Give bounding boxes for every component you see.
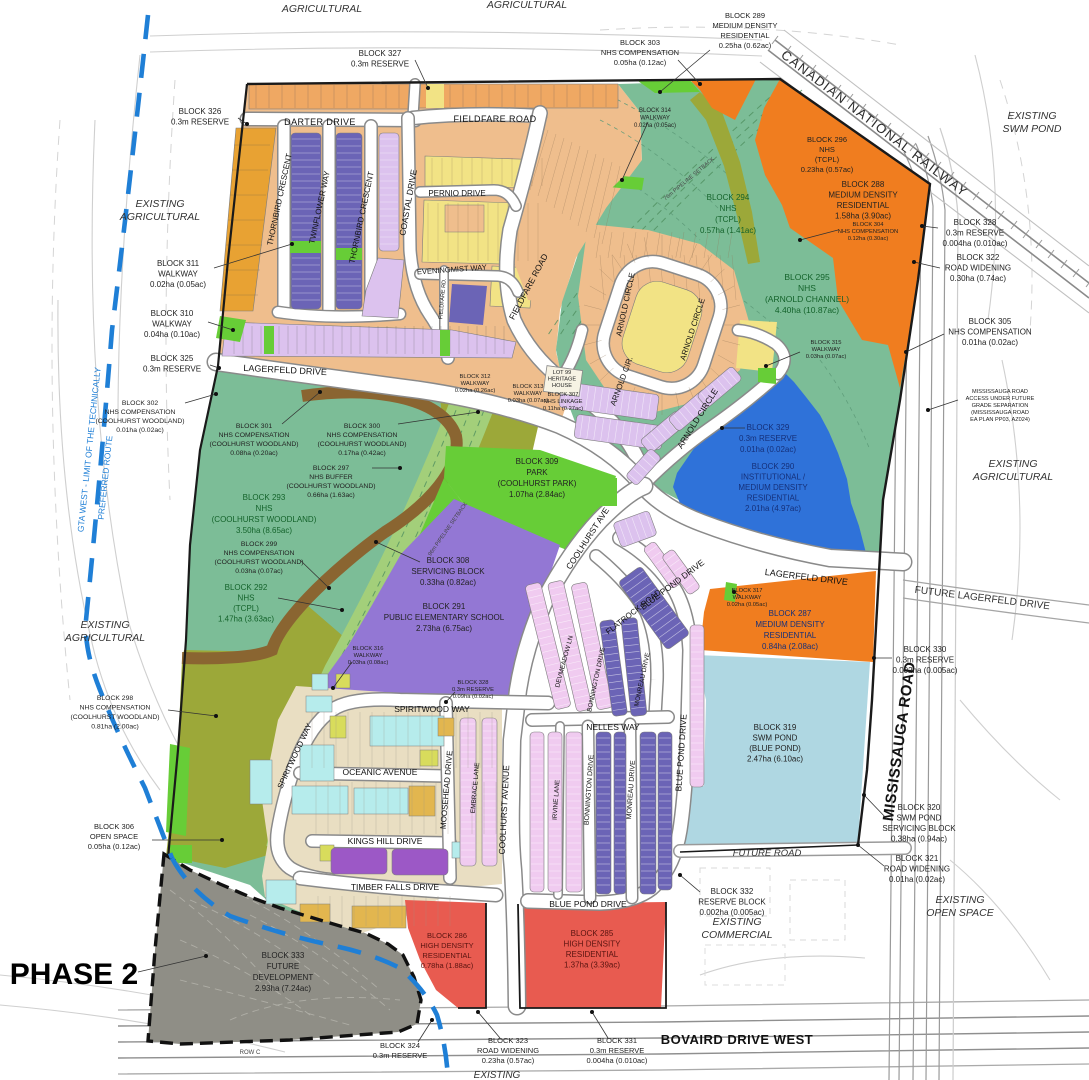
svg-text:ROW C: ROW C [240, 1050, 261, 1056]
svg-text:EXISTING: EXISTING [474, 1070, 521, 1080]
svg-text:NELLES WAY: NELLES WAY [586, 722, 640, 732]
svg-text:DARTER DRIVE: DARTER DRIVE [284, 117, 356, 127]
svg-text:EXISTINGOPEN SPACE: EXISTINGOPEN SPACE [926, 894, 994, 919]
svg-text:BLOCK 3240.3m RESERVE: BLOCK 3240.3m RESERVE [373, 1041, 427, 1060]
svg-text:EXISTINGSWM POND: EXISTINGSWM POND [1003, 110, 1062, 135]
svg-text:BLOCK 286HIGH DENSITYRESIDENTI: BLOCK 286HIGH DENSITYRESIDENTIAL0.78ha (… [420, 931, 473, 970]
svg-text:BLOCK 3290.3m RESERVE0.01ha (0: BLOCK 3290.3m RESERVE0.01ha (0.02ac) [739, 423, 797, 454]
svg-text:BLOCK 312WALKWAY0.02ha (0.26ac: BLOCK 312WALKWAY0.02ha (0.26ac) [455, 374, 496, 394]
svg-text:AGRICULTURAL: AGRICULTURAL [281, 3, 362, 15]
svg-text:BLOCK 314WALKWAY0.02ha (0.05ac: BLOCK 314WALKWAY0.02ha (0.05ac) [634, 108, 676, 129]
svg-text:OCEANIC AVENUE: OCEANIC AVENUE [343, 767, 418, 777]
svg-text:MISSISSAUGA ROADACCESS UNDER F: MISSISSAUGA ROADACCESS UNDER FUTUREGRADE… [966, 389, 1035, 423]
svg-text:BLOCK 316WALKWAY0.03ha (0.08ac: BLOCK 316WALKWAY0.03ha (0.08ac) [348, 646, 389, 666]
svg-text:BLOCK 307NHS LINKAGE0.11ha (0.: BLOCK 307NHS LINKAGE0.11ha (0.27ac) [543, 392, 583, 412]
svg-text:SPIRITWOOD WAY: SPIRITWOOD WAY [394, 704, 470, 714]
svg-text:BLOCK 313WALKWAY0.03ha (0.07ac: BLOCK 313WALKWAY0.03ha (0.07ac) [508, 384, 549, 404]
svg-text:PERNIO DRIVE: PERNIO DRIVE [428, 189, 485, 198]
svg-text:BLOCK 3250.3m RESERVE: BLOCK 3250.3m RESERVE [143, 354, 201, 374]
svg-text:PHASE 2: PHASE 2 [10, 958, 138, 991]
svg-text:AGRICULTURAL: AGRICULTURAL [486, 0, 567, 11]
svg-text:BLUE POND DRIVE: BLUE POND DRIVE [549, 899, 627, 909]
svg-text:BLOCK 315WALKWAY0.03ha (0.07ac: BLOCK 315WALKWAY0.03ha (0.07ac) [806, 340, 847, 360]
svg-text:KINGS HILL DRIVE: KINGS HILL DRIVE [348, 836, 423, 846]
svg-text:BOVAIRD DRIVE WEST: BOVAIRD DRIVE WEST [661, 1032, 814, 1047]
svg-text:BLOCK 285HIGH DENSITYRESIDENTI: BLOCK 285HIGH DENSITYRESIDENTIAL1.37ha (… [564, 929, 622, 970]
svg-text:FUTURE ROAD: FUTURE ROAD [733, 848, 802, 859]
svg-text:BLOCK 3270.3m RESERVE: BLOCK 3270.3m RESERVE [351, 49, 409, 69]
svg-text:TIMBER FALLS DRIVE: TIMBER FALLS DRIVE [351, 882, 440, 892]
svg-text:BLOCK 306OPEN SPACE0.05ha (0.1: BLOCK 306OPEN SPACE0.05ha (0.12ac) [88, 822, 141, 851]
svg-text:FIELDFARE ROAD: FIELDFARE ROAD [453, 114, 536, 124]
svg-text:BLOCK 319SWM POND(BLUE POND)2.: BLOCK 319SWM POND(BLUE POND)2.47ha (6.10… [747, 723, 803, 764]
svg-text:BLOCK 3280.3m RESERVE0.09ha (0: BLOCK 3280.3m RESERVE0.09ha (0.02ac) [452, 680, 494, 700]
svg-text:BLOCK 3260.3m RESERVE: BLOCK 3260.3m RESERVE [171, 107, 229, 127]
